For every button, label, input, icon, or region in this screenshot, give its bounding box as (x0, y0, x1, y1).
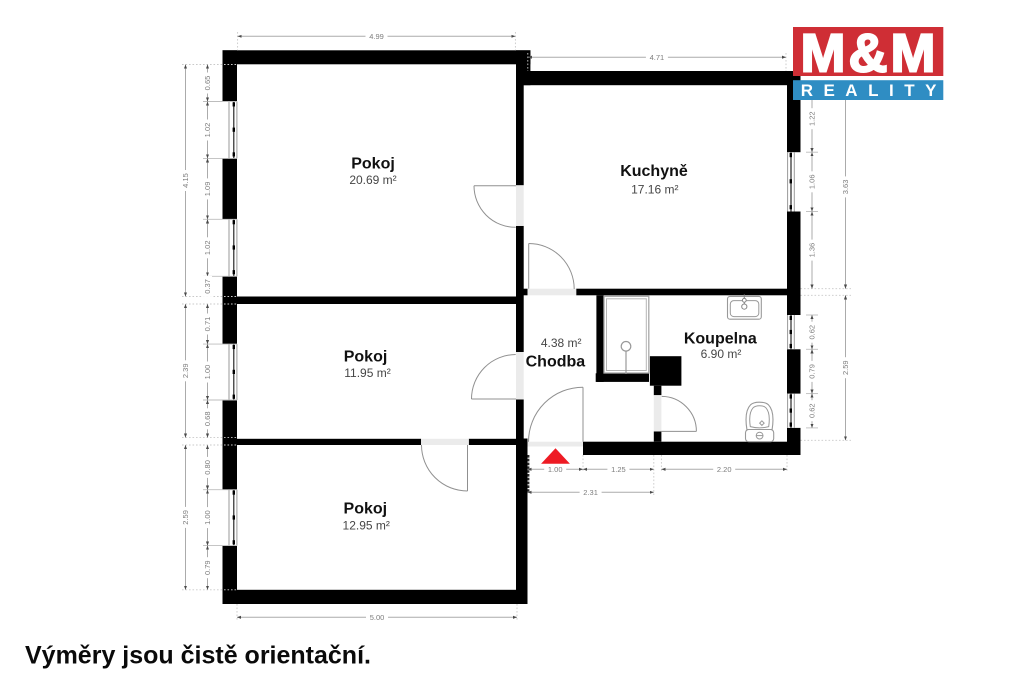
svg-text:0.65: 0.65 (203, 76, 212, 91)
svg-text:1.02: 1.02 (203, 123, 212, 138)
svg-text:3.63: 3.63 (841, 180, 850, 195)
svg-text:1.06: 1.06 (808, 174, 817, 189)
svg-text:1.02: 1.02 (203, 240, 212, 255)
svg-text:1.00: 1.00 (203, 365, 212, 380)
svg-text:1.00: 1.00 (203, 510, 212, 525)
svg-text:4.38 m²: 4.38 m² (541, 336, 582, 350)
svg-text:2.39: 2.39 (181, 363, 190, 378)
svg-text:2.59: 2.59 (841, 360, 850, 375)
svg-text:Kuchyně: Kuchyně (620, 163, 688, 180)
svg-text:Pokoj: Pokoj (344, 349, 388, 366)
svg-text:M&M: M&M (801, 24, 939, 84)
svg-text:Výměry jsou čistě orientační.: Výměry jsou čistě orientační. (25, 641, 371, 669)
svg-text:0.71: 0.71 (203, 317, 212, 332)
svg-text:Pokoj: Pokoj (344, 500, 388, 517)
svg-text:Chodba: Chodba (526, 354, 586, 371)
svg-text:4.15: 4.15 (181, 173, 190, 188)
svg-text:0.62: 0.62 (808, 325, 817, 340)
svg-text:REALITY: REALITY (801, 81, 947, 100)
svg-text:2.31: 2.31 (583, 488, 598, 497)
svg-text:4.71: 4.71 (650, 53, 665, 62)
svg-text:12.95 m²: 12.95 m² (343, 519, 390, 533)
svg-text:6.90 m²: 6.90 m² (701, 347, 742, 361)
svg-text:0.80: 0.80 (203, 460, 212, 475)
svg-text:1.22: 1.22 (808, 111, 817, 126)
svg-text:20.69 m²: 20.69 m² (349, 173, 396, 187)
svg-text:1.25: 1.25 (611, 465, 626, 474)
svg-text:0.37: 0.37 (203, 279, 212, 294)
svg-text:0.79: 0.79 (203, 560, 212, 575)
svg-text:4.99: 4.99 (369, 32, 384, 41)
svg-text:Pokoj: Pokoj (351, 156, 395, 173)
svg-text:1.09: 1.09 (203, 182, 212, 197)
svg-text:2.20: 2.20 (717, 465, 732, 474)
svg-text:0.79: 0.79 (808, 364, 817, 379)
svg-text:17.16 m²: 17.16 m² (631, 183, 678, 197)
svg-text:Koupelna: Koupelna (684, 331, 757, 348)
svg-text:1.00: 1.00 (548, 465, 563, 474)
svg-text:0.68: 0.68 (203, 411, 212, 426)
svg-text:0.62: 0.62 (808, 403, 817, 418)
svg-text:5.00: 5.00 (370, 613, 385, 622)
svg-text:2.59: 2.59 (181, 510, 190, 525)
svg-text:1.36: 1.36 (808, 243, 817, 258)
svg-text:11.95 m²: 11.95 m² (344, 366, 390, 380)
